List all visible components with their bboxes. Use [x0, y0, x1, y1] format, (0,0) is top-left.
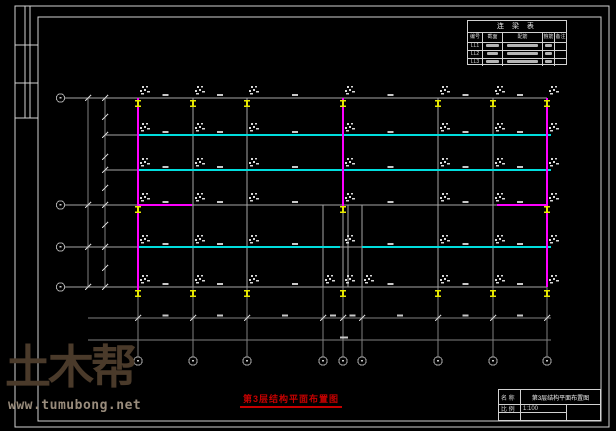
- watermark-url: www.tumubong.net: [8, 398, 141, 413]
- schedule-row-id: LL1: [468, 43, 483, 50]
- title-block-name-label: 名 称: [499, 390, 521, 405]
- title-block-right-cell: [567, 405, 600, 420]
- schedule-row: LL1: [468, 43, 566, 51]
- schedule-row: LL3: [468, 59, 566, 66]
- title-block: 名 称 第3层结构平面布置图 比 例 1:100: [498, 389, 601, 421]
- watermark-logo: 土木帮: [5, 344, 134, 390]
- title-block-scale-label: 比 例: [499, 405, 521, 413]
- schedule-title: 连 梁 表: [468, 21, 566, 33]
- title-block-name-value: 第3层结构平面布置图: [521, 390, 600, 405]
- beam-lines-cyan: [138, 135, 551, 247]
- schedule-row-id: LL3: [468, 59, 483, 66]
- schedule-row: LL2: [468, 51, 566, 59]
- dimension-lines: [88, 98, 551, 357]
- annotation-marks: [140, 86, 559, 284]
- schedule-table: 连 梁 表 编号 截面 配筋 箍筋 备注 LL1 LL2 LL3: [467, 20, 567, 65]
- schedule-header-note: 备注: [555, 33, 566, 42]
- plan-title: 第3层结构平面布置图: [240, 392, 342, 408]
- dimension-ticks: [85, 94, 550, 338]
- binding-strip-cells: [15, 6, 38, 118]
- schedule-row-id: LL2: [468, 51, 483, 58]
- schedule-header-stirrup: 箍筋: [543, 33, 555, 42]
- title-block-empty-label: [499, 413, 521, 420]
- schedule-header-section: 截面: [483, 33, 503, 42]
- title-block-scale-value: 1:100: [521, 405, 567, 413]
- schedule-header-id: 编号: [468, 33, 483, 42]
- schedule-header-rebar: 配筋: [503, 33, 543, 42]
- schedule-header-row: 编号 截面 配筋 箍筋 备注: [468, 33, 566, 43]
- title-block-empty-value: [521, 413, 567, 420]
